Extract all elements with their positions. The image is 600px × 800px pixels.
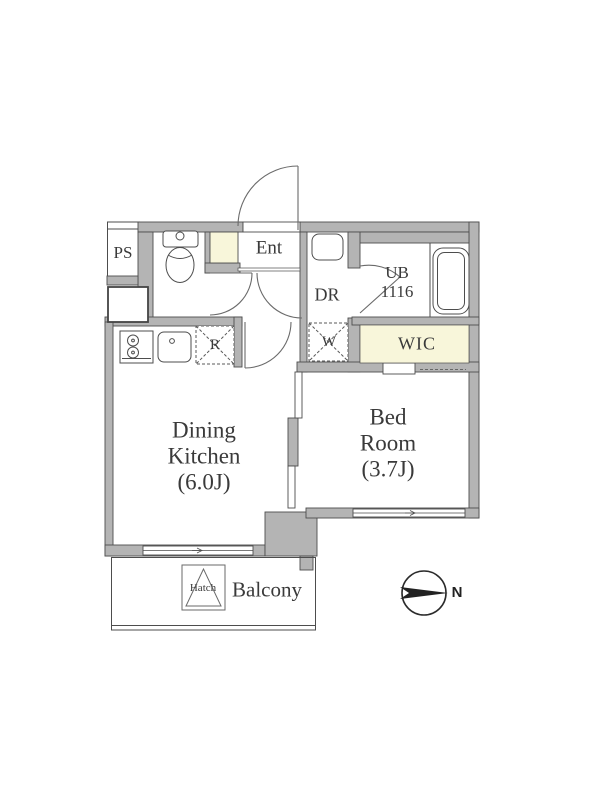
bath-area	[430, 243, 469, 317]
dk-label-line3: (6.0J)	[168, 469, 241, 495]
dining-kitchen-label: Dining Kitchen (6.0J)	[168, 417, 241, 494]
bed-room-label: Bed Room (3.7J)	[360, 404, 416, 481]
entrance-threshold	[243, 222, 300, 232]
washer-space-label: W	[322, 334, 336, 350]
shoe-cabinet	[210, 232, 238, 263]
ent-label: Ent	[256, 239, 282, 260]
kitchen-counter	[120, 331, 191, 363]
toilet-icon	[163, 231, 198, 283]
bathtub-icon	[433, 248, 469, 314]
sink-icon	[158, 332, 191, 362]
hall-door	[257, 273, 302, 318]
dr-label: DR	[314, 285, 339, 304]
bed-label-line3: (3.7J)	[360, 456, 416, 482]
walls	[105, 222, 479, 570]
floor-plan-page: PS Ent DR UB 1116 WIC R W Dining Kitchen…	[0, 0, 600, 800]
dk-label-line2: Kitchen	[168, 443, 241, 469]
wic-label: WIC	[398, 334, 436, 353]
partition-slide-upper	[295, 372, 302, 418]
ub-label: UB 1116	[381, 263, 414, 301]
balcony-label: Balcony	[232, 579, 302, 602]
wic-opening	[383, 363, 415, 374]
ub-label-line2: 1116	[381, 282, 414, 301]
faucet-icon	[170, 339, 175, 344]
bed-label-line2: Room	[360, 430, 416, 456]
partition-slide-lower	[288, 466, 295, 508]
dk-label-line1: Dining	[168, 417, 241, 443]
north-label: N	[452, 585, 463, 601]
entrance-step	[238, 268, 300, 271]
meter-box	[108, 287, 148, 322]
ub-label-line1: UB	[381, 263, 414, 282]
washbasin-icon	[312, 234, 343, 260]
fridge-space-label: R	[210, 337, 220, 353]
compass-icon	[400, 571, 448, 615]
bed-label-line1: Bed	[360, 404, 416, 430]
hatch-label: Hatch	[190, 583, 216, 595]
ps-label: PS	[114, 244, 133, 262]
floor-plan-drawing	[0, 0, 600, 800]
